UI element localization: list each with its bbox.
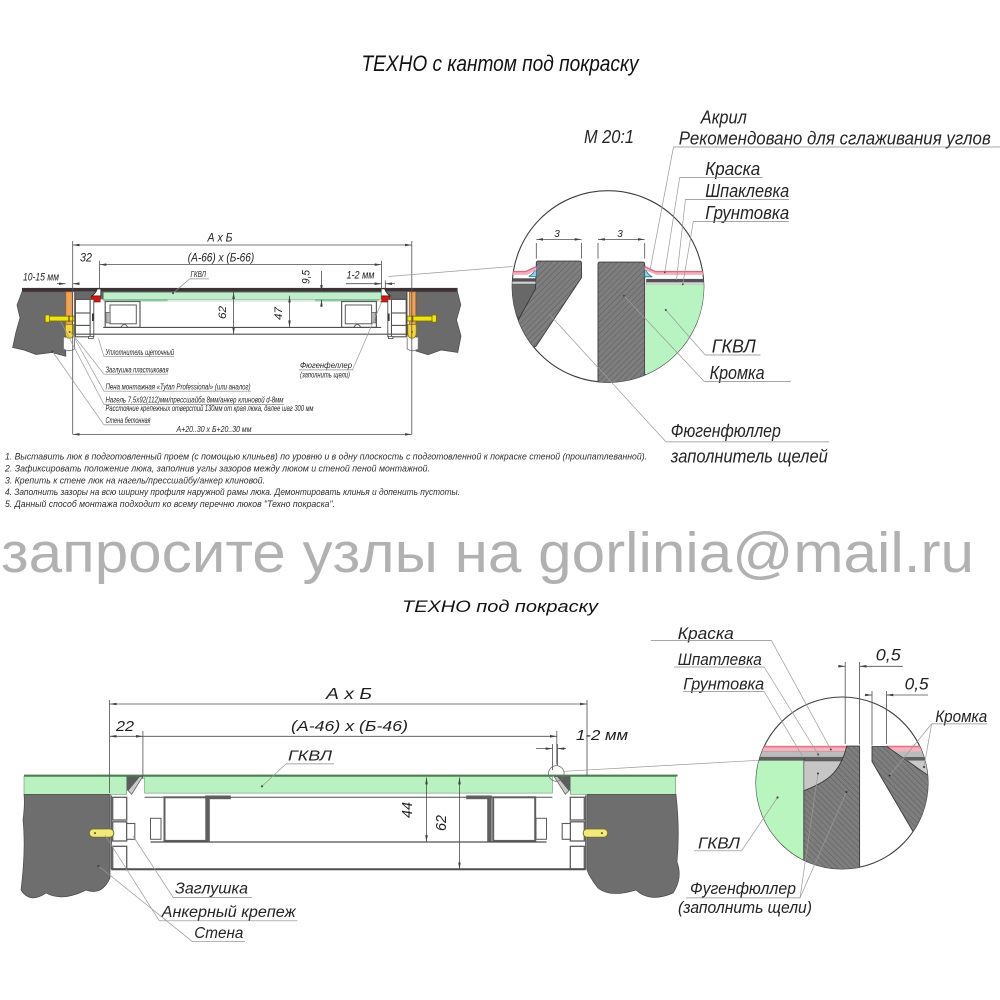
svg-text:2. Зафиксировать положение люк: 2. Зафиксировать положение люка, заполни… [4, 464, 430, 475]
svg-text:Фугенфюллер: Фугенфюллер [690, 880, 796, 898]
svg-text:22: 22 [115, 718, 135, 735]
svg-text:9,5: 9,5 [301, 269, 313, 284]
svg-text:ГКВЛ: ГКВЛ [698, 836, 740, 853]
svg-text:Рекомендовано для сглаживания: Рекомендовано для сглаживания углов [679, 129, 991, 149]
svg-text:ГКВЛ: ГКВЛ [191, 269, 207, 279]
svg-text:1-2 мм: 1-2 мм [347, 269, 375, 281]
svg-text:Стена: Стена [194, 925, 243, 942]
svg-text:62: 62 [217, 306, 229, 319]
svg-text:5. Данный способ монтажа подхо: 5. Данный способ монтажа подходит ко все… [5, 499, 335, 510]
svg-text:ТЕХНО под покраску: ТЕХНО под покраску [402, 597, 600, 616]
svg-text:Анкерный крепеж: Анкерный крепеж [161, 904, 297, 921]
svg-text:Шпатлевка: Шпатлевка [678, 650, 762, 669]
svg-text:3: 3 [554, 229, 560, 240]
svg-text:А+20..30 х Б+20..30 мм: А+20..30 х Б+20..30 мм [176, 424, 252, 434]
svg-text:А х Б: А х Б [207, 231, 233, 245]
svg-text:Фюгенфеллер: Фюгенфеллер [300, 361, 352, 370]
svg-text:0,5: 0,5 [876, 645, 902, 664]
svg-text:32: 32 [80, 251, 92, 265]
svg-text:запросите узлы на gorlinia@mai: запросите узлы на gorlinia@mail.ru [1, 521, 974, 585]
svg-text:Уплотнитель щеточный: Уплотнитель щеточный [105, 348, 174, 357]
svg-text:1-2 мм: 1-2 мм [576, 727, 628, 744]
svg-text:Грунтовка: Грунтовка [683, 675, 764, 694]
svg-text:(А-46) х (Б-46): (А-46) х (Б-46) [291, 718, 408, 735]
svg-text:Кромка: Кромка [710, 363, 765, 383]
svg-text:0,5: 0,5 [905, 674, 930, 693]
svg-text:Акрил: Акрил [700, 108, 747, 128]
svg-text:Кромка: Кромка [935, 707, 987, 726]
svg-text:3: 3 [617, 229, 623, 240]
svg-text:заполнитель щелей: заполнитель щелей [670, 446, 828, 466]
svg-text:62: 62 [433, 814, 450, 831]
svg-text:ГКВЛ: ГКВЛ [712, 336, 757, 356]
svg-text:Грунтовка: Грунтовка [705, 203, 789, 223]
svg-text:47: 47 [273, 306, 285, 320]
svg-text:(заполнить щели): (заполнить щели) [300, 371, 350, 380]
svg-text:1. Выставить люк в подготовлен: 1. Выставить люк в подготовленный проем … [5, 452, 647, 463]
svg-text:Краска: Краска [705, 159, 760, 179]
svg-text:Пена монтажная «Tytan Professi: Пена монтажная «Tytan Professional» (или… [106, 382, 251, 391]
svg-text:А х Б: А х Б [325, 686, 372, 703]
svg-text:М 20:1: М 20:1 [584, 127, 634, 147]
svg-text:Заглушка: Заглушка [175, 881, 248, 898]
svg-text:10-15 мм: 10-15 мм [23, 272, 59, 284]
svg-text:4. Заполнить зазоры на всю шир: 4. Заполнить зазоры на всю ширину профил… [5, 487, 460, 498]
svg-text:ТЕХНО с кантом под покраску: ТЕХНО с кантом под покраску [362, 51, 641, 76]
svg-text:Заглушка пластиковая: Заглушка пластиковая [106, 365, 169, 374]
svg-text:44: 44 [399, 802, 416, 818]
svg-text:Шпаклевка: Шпаклевка [705, 181, 789, 201]
svg-text:Расстояние крепежных отверстий: Расстояние крепежных отверстий 130мм от … [106, 404, 314, 413]
svg-text:(А-66) х (Б-66): (А-66) х (Б-66) [188, 251, 255, 265]
svg-text:3. Крепить к стене люк на наге: 3. Крепить к стене люк на нагель/прессша… [5, 475, 265, 486]
svg-text:Краска: Краска [678, 624, 734, 643]
svg-text:ГКВЛ: ГКВЛ [288, 747, 333, 764]
svg-text:(заполнить щели): (заполнить щели) [678, 899, 812, 917]
svg-text:Фюгенфюллер: Фюгенфюллер [671, 421, 781, 441]
svg-text:Стена бетонная: Стена бетонная [106, 416, 151, 425]
